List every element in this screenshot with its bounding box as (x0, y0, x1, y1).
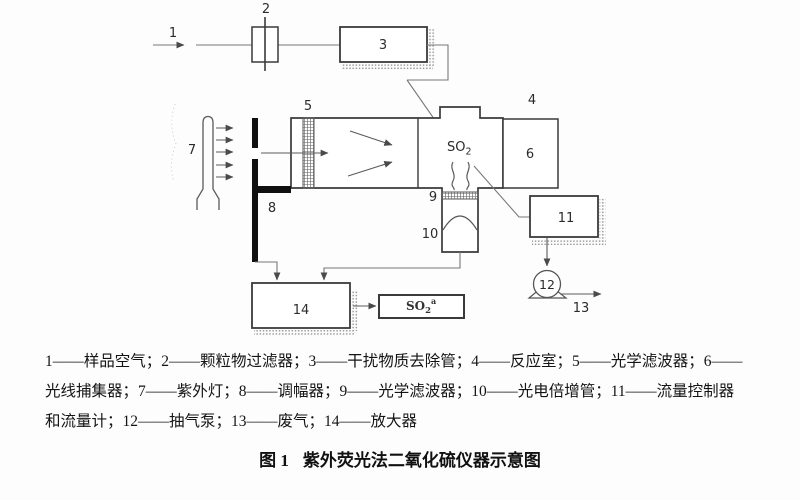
label-11: 11 (558, 211, 575, 226)
label-3: 3 (379, 38, 387, 53)
modulator (251, 118, 291, 262)
hatch-right-14 (352, 290, 358, 331)
scan-artifact (171, 104, 176, 182)
instrument-schematic: SO2 SO2a 1 2 3 4 5 6 7 8 9 10 11 12 13 1… (0, 0, 800, 345)
label-2: 2 (262, 2, 270, 17)
label-14: 14 (293, 303, 310, 318)
legend-line-2: 光线捕集器；7——紫外灯；8——调幅器；9——光学滤波器；10——光电倍增管；1… (45, 381, 785, 403)
modulator-slit (251, 148, 259, 159)
hatch-bottom-3 (341, 64, 433, 70)
figure-title: 紫外荧光法二氧化硫仪器示意图 (303, 451, 541, 470)
hatch-right-11 (600, 199, 606, 241)
figure-page: SO2 SO2a 1 2 3 4 5 6 7 8 9 10 11 12 13 1… (0, 0, 800, 500)
label-10: 10 (422, 227, 439, 242)
hatch-bottom-11 (532, 239, 606, 245)
figure-number: 图 1 (259, 451, 289, 470)
uv-lamp (197, 117, 219, 211)
particle-filter (252, 17, 278, 71)
uv-light-arrows (216, 128, 233, 177)
label-7: 7 (188, 143, 196, 158)
modulator-to-amplifier-line (255, 262, 277, 280)
label-8: 8 (268, 201, 276, 216)
label-9: 9 (429, 190, 437, 205)
label-4: 4 (528, 93, 536, 108)
interference-removal-tube (340, 27, 435, 70)
hatch-right-3 (429, 29, 435, 67)
signal-lines (255, 252, 460, 280)
label-6: 6 (526, 147, 534, 162)
label-12: 12 (539, 277, 555, 292)
reaction-chamber (291, 107, 503, 252)
hatch-bottom-14 (254, 330, 354, 336)
optical-filter-9 (442, 192, 478, 199)
modulator-bar (252, 118, 258, 262)
legend-line-3: 和流量计；12——抽气泵；13——废气；14——放大器 (45, 411, 785, 433)
figure-caption: 图 1紫外荧光法二氧化硫仪器示意图 (0, 446, 800, 471)
label-1: 1 (169, 26, 177, 41)
modulator-arm (258, 186, 291, 193)
label-5: 5 (304, 99, 312, 114)
pmt-to-amplifier-line (324, 252, 460, 280)
label-13: 13 (573, 301, 590, 316)
legend-line-1: 1——样品空气；2——颗粒物过滤器；3——干扰物质去除管；4——反应室；5——光… (45, 351, 785, 373)
